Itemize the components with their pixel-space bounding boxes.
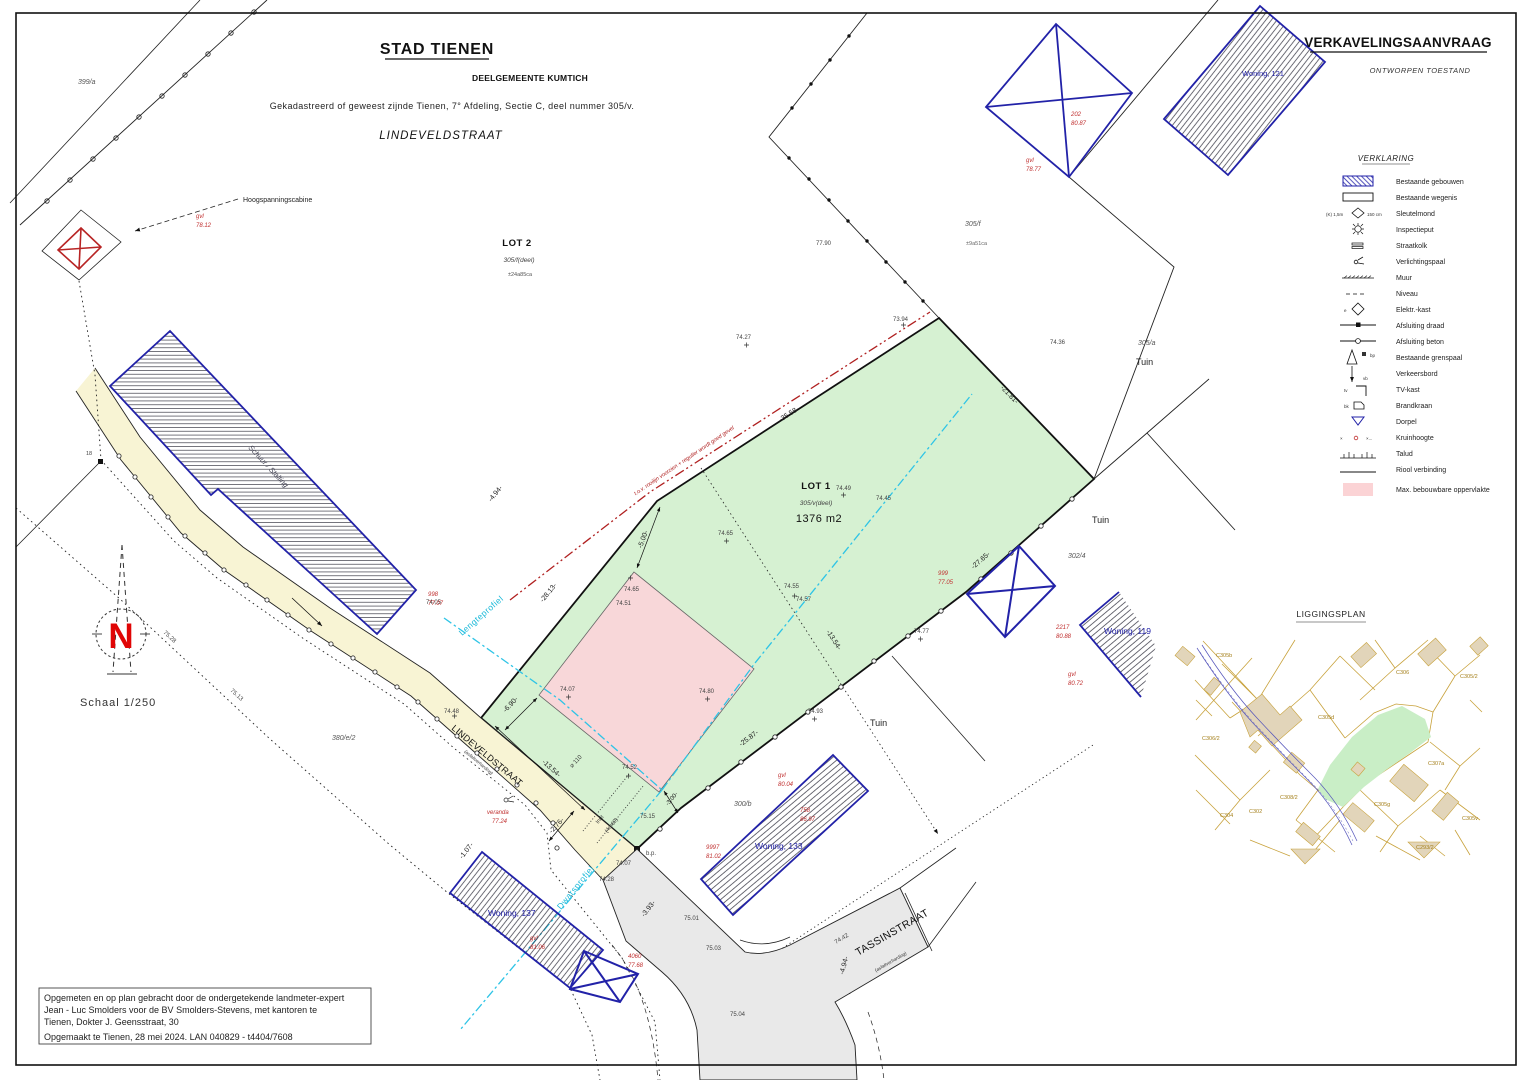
svg-text:1376 m2: 1376 m2 [796, 513, 842, 525]
svg-text:74.55: 74.55 [784, 584, 800, 590]
svg-text:2217: 2217 [1055, 625, 1070, 631]
svg-text:78.12: 78.12 [196, 223, 212, 229]
svg-text:C306: C306 [1396, 670, 1409, 676]
svg-text:74.36: 74.36 [1050, 340, 1066, 346]
svg-text:80.04: 80.04 [778, 782, 794, 788]
svg-text:Straatkolk: Straatkolk [1396, 243, 1428, 250]
svg-text:gvl: gvl [530, 936, 538, 942]
svg-text:Brandkraan: Brandkraan [1396, 403, 1432, 410]
svg-text:ONTWORPEN TOESTAND: ONTWORPEN TOESTAND [1370, 66, 1471, 75]
svg-text:Inspectieput: Inspectieput [1396, 227, 1434, 234]
svg-text:bp: bp [1370, 353, 1376, 358]
svg-text:74.48: 74.48 [444, 709, 460, 715]
svg-text:×...: ×... [1366, 436, 1372, 441]
svg-text:74.45: 74.45 [876, 496, 892, 502]
svg-text:305/f(deel): 305/f(deel) [503, 257, 534, 264]
svg-text:74.77: 74.77 [914, 629, 930, 635]
svg-text:Afsluiting beton: Afsluiting beton [1396, 339, 1444, 346]
svg-text:C308/2: C308/2 [1280, 795, 1298, 801]
svg-text:±24a85ca: ±24a85ca [508, 272, 533, 278]
svg-text:(K) 1,5m: (K) 1,5m [1326, 212, 1344, 217]
svg-text:18: 18 [86, 451, 92, 457]
svg-text:TV-kast: TV-kast [1396, 387, 1420, 394]
svg-text:Tuin: Tuin [870, 718, 887, 728]
svg-text:9997: 9997 [706, 845, 720, 851]
svg-text:C305v: C305v [1462, 816, 1478, 822]
svg-text:Afsluiting draad: Afsluiting draad [1396, 323, 1444, 330]
svg-text:N: N [108, 617, 133, 656]
svg-text:b.p.: b.p. [646, 851, 656, 857]
svg-text:LIGGINGSPLAN: LIGGINGSPLAN [1296, 609, 1365, 619]
svg-text:vb: vb [1363, 376, 1368, 381]
svg-text:C305g: C305g [1374, 802, 1390, 808]
svg-text:77.07: 77.07 [428, 601, 444, 607]
svg-text:Schaal 1/250: Schaal 1/250 [80, 697, 156, 709]
svg-text:Tienen, Dokter J. Geensstraat,: Tienen, Dokter J. Geensstraat, 30 [44, 1017, 179, 1027]
svg-text:Hoogspanningscabine: Hoogspanningscabine [243, 197, 312, 204]
svg-text:77.05: 77.05 [938, 580, 954, 586]
svg-text:74.07: 74.07 [560, 687, 576, 693]
svg-text:Opgemeten en op plan gebracht: Opgemeten en op plan gebracht door de on… [44, 993, 345, 1003]
svg-text:74.07: 74.07 [616, 861, 632, 867]
svg-text:C306/2: C306/2 [1202, 736, 1220, 742]
svg-text:C293/2: C293/2 [1416, 845, 1434, 851]
svg-text:305/f: 305/f [965, 221, 982, 228]
svg-text:Woning, 137: Woning, 137 [488, 908, 536, 918]
svg-text:80.87: 80.87 [1071, 121, 1087, 127]
svg-text:Elektr.-kast: Elektr.-kast [1396, 307, 1431, 314]
svg-text:×: × [1340, 436, 1343, 441]
svg-text:77.68: 77.68 [628, 963, 644, 969]
svg-text:Bestaande gebouwen: Bestaande gebouwen [1396, 179, 1464, 186]
svg-text:C305b: C305b [1216, 653, 1232, 659]
svg-text:Kruinhoogte: Kruinhoogte [1396, 435, 1434, 442]
svg-text:202: 202 [1070, 112, 1082, 118]
svg-text:Jean - Luc Smolders voor de BV: Jean - Luc Smolders voor de BV Smolders-… [44, 1005, 317, 1015]
svg-text:74.65: 74.65 [624, 587, 640, 593]
svg-text:Opgemaakt te Tienen, 28 mei 20: Opgemaakt te Tienen, 28 mei 2024. LAN 04… [44, 1032, 293, 1042]
svg-text:C305d: C305d [1318, 715, 1334, 721]
svg-text:Talud: Talud [1396, 451, 1413, 458]
svg-text:81.02: 81.02 [706, 854, 722, 860]
svg-text:Dorpel: Dorpel [1396, 419, 1417, 426]
svg-text:74.51: 74.51 [616, 601, 632, 607]
svg-text:VERKLARING: VERKLARING [1358, 154, 1415, 163]
svg-text:999: 999 [938, 571, 949, 577]
svg-text:bk: bk [1344, 404, 1350, 409]
svg-text:302/4: 302/4 [1068, 553, 1086, 560]
svg-text:74.57: 74.57 [796, 597, 812, 603]
svg-text:75.01: 75.01 [684, 916, 700, 922]
svg-text:75.03: 75.03 [706, 946, 722, 952]
svg-text:LOT 2: LOT 2 [502, 238, 531, 249]
svg-text:77.90: 77.90 [816, 241, 832, 247]
svg-text:74.93: 74.93 [808, 709, 824, 715]
svg-text:Verkeersbord: Verkeersbord [1396, 371, 1438, 378]
svg-text:LINDEVELDSTRAAT: LINDEVELDSTRAAT [379, 130, 502, 142]
svg-text:Verlichtingspaal: Verlichtingspaal [1396, 259, 1445, 266]
svg-text:C307a: C307a [1428, 761, 1445, 767]
svg-text:74.65: 74.65 [718, 531, 734, 537]
svg-text:74.49: 74.49 [836, 486, 852, 492]
svg-text:300/b: 300/b [734, 801, 752, 808]
svg-text:4060: 4060 [628, 954, 642, 960]
svg-text:Niveau: Niveau [1396, 291, 1418, 298]
svg-text:Bestaande grenspaal: Bestaande grenspaal [1396, 355, 1463, 362]
svg-text:74.28: 74.28 [599, 877, 615, 883]
svg-text:77.24: 77.24 [492, 819, 508, 825]
svg-text:±9a51ca: ±9a51ca [966, 241, 988, 247]
svg-text:74.27: 74.27 [736, 335, 752, 341]
svg-text:gvl: gvl [1026, 158, 1034, 164]
svg-text:80.72: 80.72 [1068, 681, 1084, 687]
svg-text:gvl: gvl [1068, 672, 1076, 678]
svg-text:73.94: 73.94 [893, 317, 909, 323]
svg-text:81.06: 81.06 [530, 945, 546, 951]
svg-text:STAD TIENEN: STAD TIENEN [380, 41, 494, 58]
svg-text:gvl: gvl [196, 214, 204, 220]
svg-text:80.88: 80.88 [1056, 634, 1072, 640]
svg-text:C305/2: C305/2 [1460, 674, 1478, 680]
svg-text:74.80: 74.80 [699, 689, 715, 695]
svg-text:Sleutelmond: Sleutelmond [1396, 211, 1435, 218]
svg-text:305/v(deel): 305/v(deel) [800, 500, 833, 507]
svg-text:C302: C302 [1249, 809, 1262, 815]
svg-text:75.15: 75.15 [640, 814, 656, 820]
svg-text:86.97: 86.97 [800, 817, 816, 823]
svg-text:Woning, 133: Woning, 133 [755, 841, 803, 851]
svg-text:Tuin: Tuin [1092, 515, 1109, 525]
svg-text:DEELGEMEENTE KUMTICH: DEELGEMEENTE KUMTICH [472, 73, 588, 83]
svg-text:305/a: 305/a [1138, 340, 1156, 347]
svg-text:VERKAVELINGSAANVRAAG: VERKAVELINGSAANVRAAG [1304, 35, 1492, 50]
svg-text:Max. bebouwbare oppervlakte: Max. bebouwbare oppervlakte [1396, 487, 1490, 494]
svg-text:78.77: 78.77 [1026, 167, 1042, 173]
svg-text:veranda: veranda [487, 810, 509, 816]
svg-text:Tuin: Tuin [1136, 357, 1153, 367]
svg-text:C304: C304 [1220, 813, 1233, 819]
svg-text:74.52: 74.52 [622, 765, 638, 771]
svg-text:gvl: gvl [778, 773, 786, 779]
svg-text:998: 998 [428, 592, 439, 598]
svg-text:Woning, 119: Woning, 119 [1104, 626, 1151, 636]
svg-text:LOT 1: LOT 1 [801, 481, 831, 492]
svg-text:Muur: Muur [1396, 275, 1413, 282]
svg-text:Gekadastreerd of geweest zijnd: Gekadastreerd of geweest zijnde Tienen, … [270, 101, 635, 111]
svg-text:758: 758 [800, 808, 811, 814]
svg-text:Riool verbinding: Riool verbinding [1396, 467, 1446, 474]
svg-text:150 cm: 150 cm [1367, 212, 1382, 217]
svg-text:75.04: 75.04 [730, 1012, 746, 1018]
svg-text:Bestaande wegenis: Bestaande wegenis [1396, 195, 1458, 202]
svg-text:380/e/2: 380/e/2 [332, 735, 355, 742]
svg-text:399/a: 399/a [78, 79, 96, 86]
svg-text:Woning, 121: Woning, 121 [1242, 69, 1284, 78]
